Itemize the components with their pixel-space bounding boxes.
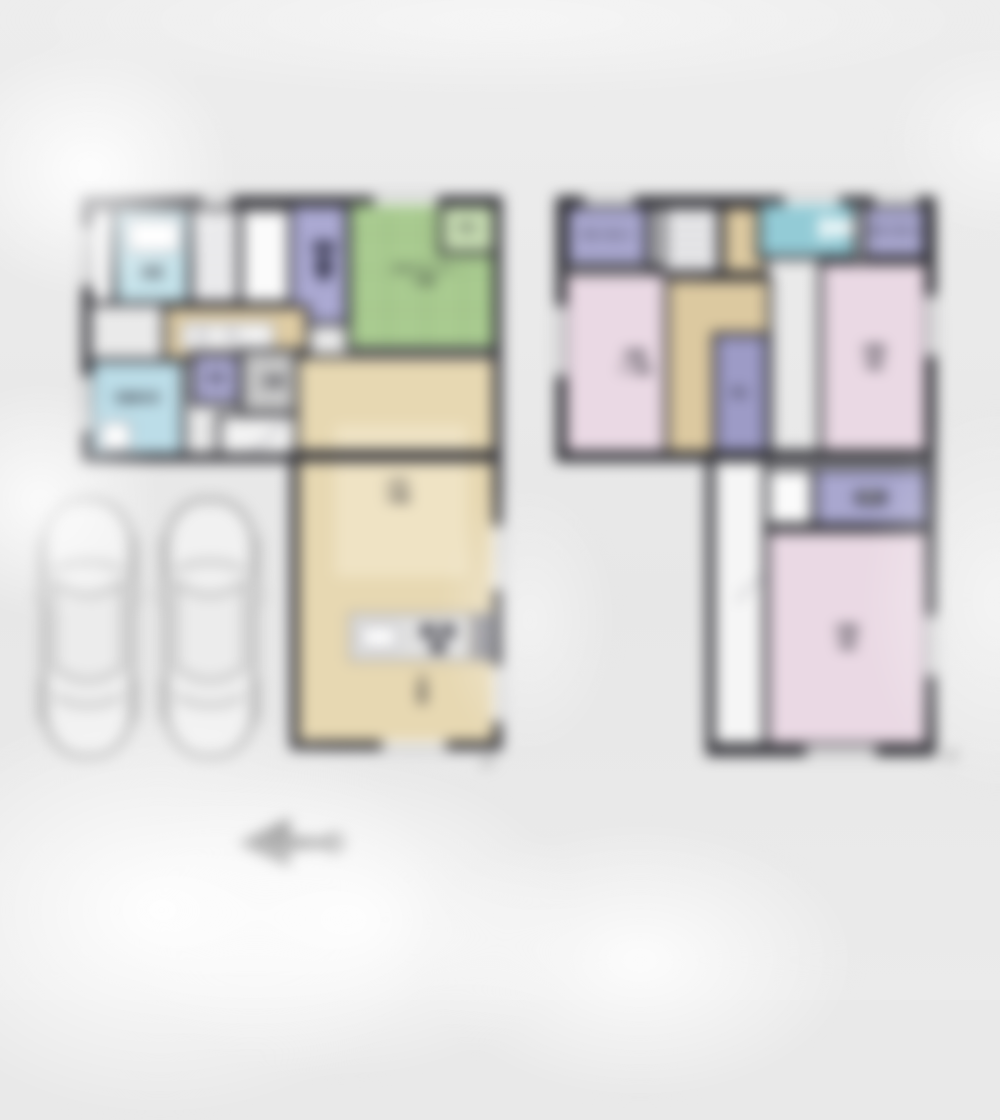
floor1-tag: 1F — [480, 754, 495, 769]
floor1-outer-wall-column — [290, 450, 502, 750]
window — [557, 306, 565, 376]
window — [202, 197, 232, 205]
floor1-plan: 浴室 タタミコーナー 4.5帖 押入 洗面脱衣室 — [82, 196, 502, 776]
car-icon — [36, 496, 140, 760]
light-streak — [120, 760, 580, 1080]
car-icon — [158, 496, 262, 760]
window — [874, 197, 918, 205]
floor2-outer-wall-column — [706, 450, 936, 756]
window — [493, 666, 501, 722]
window — [83, 376, 91, 432]
light-streak — [420, 820, 860, 1100]
window — [584, 197, 634, 205]
window — [784, 197, 840, 205]
floor-plan-image: 浴室 タタミコーナー 4.5帖 押入 洗面脱衣室 — [0, 0, 1000, 1000]
blurred-scene: 浴室 タタミコーナー 4.5帖 押入 洗面脱衣室 — [0, 0, 1000, 1000]
floor2-tag: 2F — [944, 748, 959, 763]
floor1-outer-wall-top — [82, 196, 502, 462]
window — [806, 747, 876, 755]
floor2-outer-wall-top — [556, 196, 936, 462]
floor2-plan: クローゼット クローゼット 洋室 7.75帖 ホール 物入 — [556, 196, 942, 772]
light-streak — [0, 0, 1000, 100]
window — [382, 741, 446, 749]
window — [374, 197, 438, 205]
window — [927, 616, 935, 676]
window — [83, 226, 91, 286]
north-arrow-icon — [230, 798, 350, 888]
window — [493, 526, 501, 590]
window — [927, 296, 935, 356]
